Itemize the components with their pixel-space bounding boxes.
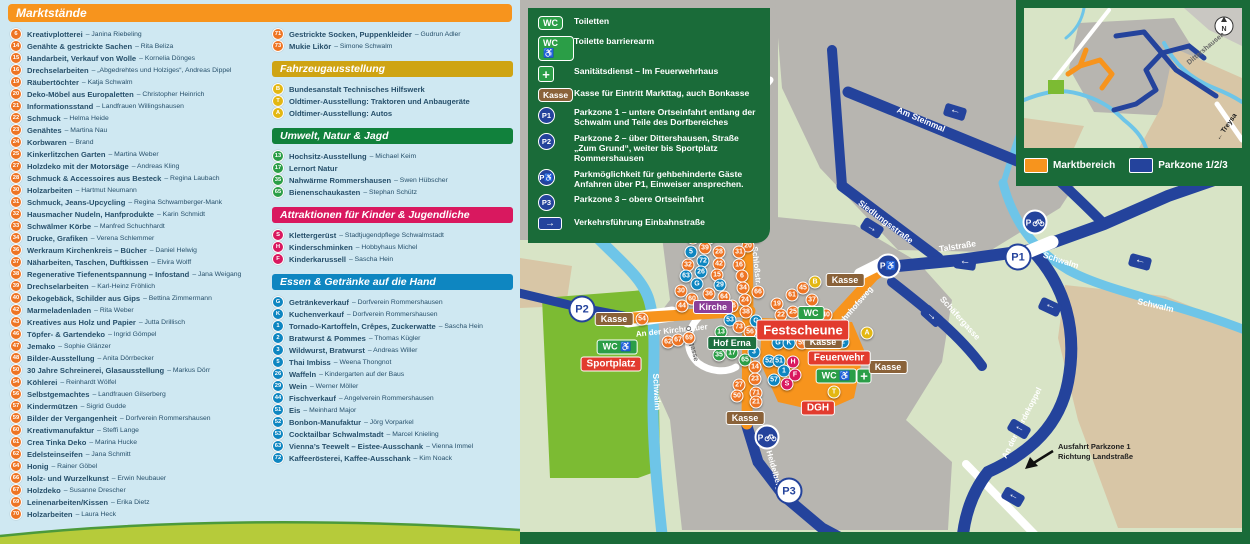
item-person: – Stephan Schütz <box>363 189 417 196</box>
legend-swatch <box>1024 158 1048 173</box>
stall-person: – Landfrauen Gilserberg <box>92 391 165 398</box>
badge-text: Kasse <box>601 314 628 324</box>
section-item-list: B Bundesanstalt Technisches Hilfswerk T … <box>272 83 513 119</box>
stall-name: Regenerative Tiefenentspannung – Infosta… <box>27 270 189 279</box>
badge-text: + <box>860 369 868 384</box>
stall-number-marker: 24 <box>10 136 22 148</box>
map-marker: T <box>828 386 841 399</box>
map-border-right <box>1242 184 1250 544</box>
stall-name: Drechselarbeiten <box>27 282 89 291</box>
legend-item: WC Toiletten <box>538 16 762 30</box>
legend-badge-icon: Kasse <box>538 88 573 102</box>
stall-person: – Rita Weber <box>94 307 134 314</box>
stall-person: – Steffi Lange <box>97 427 139 434</box>
legend-label: Parkzone 2 – über Dittershausen, Straße … <box>574 133 762 163</box>
map-badge: WC <box>798 306 825 320</box>
section-title: Umwelt, Natur & Jagd <box>280 130 389 142</box>
item-letter-marker: 53 <box>272 428 284 440</box>
item-letter-marker: S <box>272 229 284 241</box>
map-marker: G <box>691 278 704 291</box>
item-person: – Vienna Immel <box>426 443 473 450</box>
map-badge: P♿ <box>876 254 901 279</box>
stall-number-marker: 34 <box>10 232 22 244</box>
stall-name: Näharbeiten, Taschen, Duftkissen <box>27 258 148 267</box>
stall-person: – Rita Beliza <box>135 43 173 50</box>
map-marker: 23 <box>749 373 762 386</box>
map-badge: Kirche <box>693 300 733 314</box>
badge-text: P♿ <box>880 261 896 272</box>
list-item: 67 Holzdeko – Susanne Drescher <box>10 484 270 496</box>
legend-label: Kasse für Eintritt Markttag, auch Bonkas… <box>574 88 762 98</box>
stall-number-marker: 37 <box>10 256 22 268</box>
stall-name: Gestrickte Socken, Puppenkleider <box>289 30 412 39</box>
stall-person: – Sigrid Gudde <box>81 403 126 410</box>
legend-badge-icon: + <box>538 66 554 82</box>
item-letter-marker: 35 <box>272 174 284 186</box>
legend-item: P2 Parkzone 2 – über Dittershausen, Stra… <box>538 133 762 163</box>
map-badge: P <box>755 425 780 450</box>
list-item: 46 Töpfer- & Gartendeko – Ingrid Gömpel <box>10 328 270 340</box>
list-item: S Klettergerüst – Stadtjugendpflege Schw… <box>272 229 513 241</box>
stall-person: – Gudrun Adler <box>415 31 461 38</box>
list-item: 44 Fischverkauf – Angelverein Rommershau… <box>272 392 513 404</box>
item-person: – Angelverein Rommershausen <box>339 395 434 402</box>
list-item: 21 Informationsstand – Landfrauen Willin… <box>10 100 270 112</box>
stall-number-marker: 71 <box>272 28 284 40</box>
section-header-bar: Umwelt, Natur & Jagd <box>272 128 513 144</box>
stall-number-marker: 43 <box>10 316 22 328</box>
stall-list-column-2: 71 Gestrickte Socken, Puppenkleider – Gu… <box>272 28 513 464</box>
stall-person: – Elvira Wolff <box>151 259 191 266</box>
list-item: 43 Kreatives aus Holz und Papier – Jutta… <box>10 316 270 328</box>
bicycle-icon <box>1032 218 1044 226</box>
stall-name: Leinenarbeiten/Kissen <box>27 498 108 507</box>
map-marker: 31 <box>733 246 746 259</box>
map-marker: 5 <box>685 246 698 259</box>
map-marker: 37 <box>806 294 819 307</box>
stall-name: Schmuck & Accessoires aus Besteck <box>27 174 161 183</box>
list-item: 50 30 Jahre Schreinerei, Glasausstellung… <box>10 364 270 376</box>
stall-person: – Martina Nau <box>65 127 108 134</box>
stall-person: – Brand <box>70 139 94 146</box>
map-badge: P1 <box>1005 244 1032 271</box>
legend-label: Parkzone 3 – obere Ortseinfahrt <box>574 194 762 204</box>
list-item: 40 Dekogebäck, Schilder aus Gips – Betti… <box>10 292 270 304</box>
section-title: Attraktionen für Kinder & Jugendliche <box>280 209 470 221</box>
list-item: 63 Vienna’s Teewelt – Eistee-Ausschank –… <box>272 440 513 452</box>
stall-person: – Sophie Glänzer <box>58 343 111 350</box>
stall-number-marker: 30 <box>10 184 22 196</box>
list-item: 5 Thai Imbiss – Weena Thongnot <box>272 356 513 368</box>
legend-label: Parkmöglichkeit für gehbehinderte Gäste … <box>574 169 762 189</box>
list-item: 13 Hochsitz-Ausstellung – Michael Keim <box>272 150 513 162</box>
item-name: Eis <box>289 406 300 415</box>
list-item: 54 Köhlerei – Reinhardt Wölfel <box>10 376 270 388</box>
map-badge: WC ♿ <box>816 369 857 384</box>
stall-name: Jemako <box>27 342 55 351</box>
badge-text: P1 <box>1011 251 1024 263</box>
legend-label: Toiletten <box>574 16 762 26</box>
item-person: – Kim Noack <box>414 455 453 462</box>
item-name: Klettergerüst <box>289 231 336 240</box>
stall-number-marker: 47 <box>10 340 22 352</box>
stall-name: Dekogebäck, Schilder aus Gips <box>27 294 140 303</box>
legend-item: P1 Parkzone 1 – untere Ortseinfahrt entl… <box>538 107 762 127</box>
item-name: Waffeln <box>289 370 316 379</box>
item-letter-marker: T <box>272 95 284 107</box>
list-item: 52 Bonbon-Manufaktur – Jörg Vorparkel <box>272 416 513 428</box>
item-name: Bundesanstalt Technisches Hilfswerk <box>289 85 425 94</box>
item-letter-marker: 63 <box>272 440 284 452</box>
marktstaende-header-bar: Marktstände <box>8 4 512 22</box>
badge-text: WC ♿ <box>603 342 632 352</box>
badge-text: Kasse <box>732 413 759 423</box>
item-person: – Andreas Willer <box>368 347 418 354</box>
item-name: Bonbon-Manufaktur <box>289 418 361 427</box>
stall-person: – Erika Dietz <box>111 499 150 506</box>
list-item: 59 Bilder der Vergangenheit – Dorfverein… <box>10 412 270 424</box>
badge-text: Sportplatz <box>587 359 636 370</box>
list-item: 66 Holz- und Wurzelkunst – Erwin Neubaue… <box>10 472 270 484</box>
stall-number-marker: 50 <box>10 364 22 376</box>
stall-number-marker: 28 <box>10 172 22 184</box>
list-item: 1 Tornado-Kartoffeln, Crêpes, Zuckerwatt… <box>272 320 513 332</box>
item-letter-marker: F <box>272 253 284 265</box>
map-badge: Feuerwehr <box>808 351 871 366</box>
stall-number-marker: 61 <box>10 436 22 448</box>
list-item: 14 Genähte & gestrickte Sachen – Rita Be… <box>10 40 270 52</box>
stall-name: Kinkerlitzchen Garten <box>27 150 106 159</box>
item-person: – Weena Thongnot <box>334 359 392 366</box>
item-name: Nahwärme Rommershausen <box>289 176 391 185</box>
list-item: 73 Mukie Likör – Simone Schwalm <box>272 40 513 52</box>
stall-name: Holzdeko <box>27 486 61 495</box>
category-section: Essen & Getränke auf die Hand G Getränke… <box>272 274 513 464</box>
legend-badge-icon: P1 <box>538 107 555 124</box>
stall-number-marker: 69 <box>10 496 22 508</box>
stall-name: Marmeladenladen <box>27 306 91 315</box>
stall-name: Kreativplotterei <box>27 30 83 39</box>
legend-badge-icon: → <box>538 217 562 230</box>
stall-name: Kindermützen <box>27 402 78 411</box>
list-item: F Kinderkarussell – Sascha Hein <box>272 253 513 265</box>
map-marker: 34 <box>737 282 750 295</box>
bicycle-icon <box>764 433 776 441</box>
item-letter-marker: 13 <box>272 150 284 162</box>
legend-label: Verkehrsführung Einbahnstraße <box>574 217 762 227</box>
map-marker: 57 <box>768 374 781 387</box>
list-item: 33 Schwälmer Körbe – Manfred Schuchhardt <box>10 220 270 232</box>
list-item: 36 Werkraum Kirchenkreis – Bücher – Dani… <box>10 244 270 256</box>
stall-number-marker: 48 <box>10 352 22 364</box>
badge-text: Kirche <box>699 302 727 312</box>
section-header-bar: Fahrzeugausstellung <box>272 61 513 77</box>
category-section: Attraktionen für Kinder & Jugendliche S … <box>272 207 513 265</box>
stall-person: – Simone Schwalm <box>334 43 392 50</box>
stall-number-marker: 73 <box>272 40 284 52</box>
badge-text: WC ♿ <box>822 371 851 381</box>
stall-number-marker: 23 <box>10 124 22 136</box>
section-header-bar: Essen & Getränke auf die Hand <box>272 274 513 290</box>
item-letter-marker: K <box>272 308 284 320</box>
list-item: 42 Marmeladenladen – Rita Weber <box>10 304 270 316</box>
item-letter-marker: H <box>272 241 284 253</box>
label-schwalm-west: Schwalm <box>651 373 663 411</box>
list-item: 56 Selbstgemachtes – Landfrauen Gilserbe… <box>10 388 270 400</box>
stall-name: Holzdeko mit der Motorsäge <box>27 162 129 171</box>
list-item: 31 Schmuck, Jeans-Upcycling – Regina Sch… <box>10 196 270 208</box>
stall-name: Holz- und Wurzelkunst <box>27 474 109 483</box>
item-name: Thai Imbiss <box>289 358 331 367</box>
item-person: – Dorfverein Rommershausen <box>352 299 443 306</box>
item-name: Bratwurst & Pommes <box>289 334 366 343</box>
brochure-page: Marktstände 6 Kreativplotterei – Janina … <box>0 0 1250 544</box>
list-item: 32 Hausmacher Nudeln, Hanfprodukte – Kar… <box>10 208 270 220</box>
item-name: Kinderkarussell <box>289 255 346 264</box>
list-item: 57 Kindermützen – Sigrid Gudde <box>10 400 270 412</box>
legend-item: P3 Parkzone 3 – obere Ortseinfahrt <box>538 194 762 211</box>
item-name: Fischverkauf <box>289 394 336 403</box>
map-marker: 39 <box>699 242 712 255</box>
item-letter-marker: 65 <box>272 186 284 198</box>
item-letter-marker: 29 <box>272 380 284 392</box>
map-badge: Sportplatz <box>581 357 642 372</box>
list-item: 22 Schmuck – Helma Heide <box>10 112 270 124</box>
item-letter-marker: 26 <box>272 368 284 380</box>
item-name: Lernort Natur <box>289 164 338 173</box>
legend-item: + Sanitätsdienst – Im Feuerwehrhaus <box>538 66 762 82</box>
item-person: – Sascha Hein <box>349 256 393 263</box>
legend-item: Kasse Kasse für Eintritt Markttag, auch … <box>538 88 762 102</box>
map-marker: A <box>861 327 874 340</box>
list-item: 48 Bilder-Ausstellung – Anita Dörrbecker <box>10 352 270 364</box>
map-badge: Kasse <box>826 273 865 287</box>
stall-number-marker: 22 <box>10 112 22 124</box>
list-item: 16 Drechselarbeiten – „Abgedrehtes und H… <box>10 64 270 76</box>
stall-person: – Ingrid Gömpel <box>108 331 156 338</box>
overview-inset: N Dittershausen ← Treysa Marktbereich Pa… <box>1016 0 1250 186</box>
stall-name: Honig <box>27 462 49 471</box>
stall-person: – Katja Schwalm <box>82 79 133 86</box>
stall-list-extra: 71 Gestrickte Socken, Puppenkleider – Gu… <box>272 28 513 52</box>
map-marker: 54 <box>636 313 649 326</box>
stall-name: Bilder-Ausstellung <box>27 354 95 363</box>
item-person: – Thomas Kügler <box>369 335 421 342</box>
stall-person: – Kornelia Dönges <box>139 55 195 62</box>
legend-swatch <box>1129 158 1153 173</box>
stall-person: – Helma Heide <box>64 115 109 122</box>
stall-number-marker: 20 <box>10 88 22 100</box>
list-item: 17 Lernort Natur <box>272 162 513 174</box>
stall-name: Crea Tinka Deko <box>27 438 86 447</box>
badge-text: Feuerwehr <box>814 353 865 364</box>
list-item: 69 Leinenarbeiten/Kissen – Erika Dietz <box>10 496 270 508</box>
stall-person: – Daniel Helwig <box>150 247 197 254</box>
item-name: Bienenschaukasten <box>289 188 360 197</box>
stall-name: Räubertöchter <box>27 78 79 87</box>
map-badge: P3 <box>776 478 803 505</box>
list-item: 47 Jemako – Sophie Glänzer <box>10 340 270 352</box>
item-person: – Stadtjugendpflege Schwalmstadt <box>339 232 444 239</box>
stall-number-marker: 67 <box>10 484 22 496</box>
page-title: Marktstände <box>16 6 87 20</box>
legend-badge-icon: WC ♿ <box>538 36 574 61</box>
map-marker: B <box>809 276 822 289</box>
item-name: Hochsitz-Ausstellung <box>289 152 367 161</box>
stall-name: Handarbeit, Verkauf von Wolle <box>27 54 136 63</box>
category-sections: Fahrzeugausstellung B Bundesanstalt Tech… <box>272 61 513 464</box>
badge-text: Festscheune <box>763 323 842 338</box>
stall-person: – Susanne Drescher <box>64 487 126 494</box>
list-item: 2 Bratwurst & Pommes – Thomas Kügler <box>272 332 513 344</box>
stall-name: Selbstgemachtes <box>27 390 89 399</box>
item-letter-marker: 5 <box>272 356 284 368</box>
stall-person: – Regina Schwamberger-Mank <box>128 199 222 206</box>
item-letter-marker: 2 <box>272 332 284 344</box>
stall-name: Korbwaren <box>27 138 67 147</box>
list-item: 6 Kreativplotterei – Janina Riebeling <box>10 28 270 40</box>
section-item-list: 13 Hochsitz-Ausstellung – Michael Keim 1… <box>272 150 513 198</box>
list-item: 25 Kinkerlitzchen Garten – Martina Weber <box>10 148 270 160</box>
stall-person: – Markus Dörr <box>167 367 210 374</box>
map-marker: 35 <box>713 349 726 362</box>
stall-person: – Janina Riebeling <box>86 31 142 38</box>
stall-name: Werkraum Kirchenkreis – Bücher <box>27 246 147 255</box>
list-item: 51 Eis – Meinhard Major <box>272 404 513 416</box>
stall-person: – Manfred Schuchhardt <box>94 223 165 230</box>
item-person: – Werner Möller <box>310 383 358 390</box>
item-name: Kuchenverkauf <box>289 310 344 319</box>
list-item: 20 Deko-Möbel aus Europaletten – Christo… <box>10 88 270 100</box>
item-person: – Sascha Hein <box>439 323 483 330</box>
category-section: Fahrzeugausstellung B Bundesanstalt Tech… <box>272 61 513 119</box>
list-item: 61 Crea Tinka Deko – Marina Hucke <box>10 436 270 448</box>
map-marker: 36 <box>703 288 716 301</box>
list-item: 30 Holzarbeiten – Hartmut Neumann <box>10 184 270 196</box>
stall-number-marker: 56 <box>10 388 22 400</box>
stall-number-marker: 42 <box>10 304 22 316</box>
section-header-bar: Attraktionen für Kinder & Jugendliche <box>272 207 513 223</box>
list-item: 53 Cocktailbar Schwalmstadt – Marcel Kni… <box>272 428 513 440</box>
list-item: 38 Regenerative Tiefenentspannung – Info… <box>10 268 270 280</box>
item-letter-marker: 52 <box>272 416 284 428</box>
legend-label: Sanitätsdienst – Im Feuerwehrhaus <box>574 66 762 76</box>
legend-label: Parkzone 1 – untere Ortseinfahrt entlang… <box>574 107 762 127</box>
item-name: Oldtimer-Ausstellung: Traktoren und Anba… <box>289 97 470 106</box>
stall-list-column-1: 6 Kreativplotterei – Janina Riebeling 14… <box>10 28 270 520</box>
stall-number-marker: 33 <box>10 220 22 232</box>
item-letter-marker: 3 <box>272 344 284 356</box>
category-section: Umwelt, Natur & Jagd 13 Hochsitz-Ausstel… <box>272 128 513 198</box>
stall-number-marker: 27 <box>10 160 22 172</box>
list-item: 37 Näharbeiten, Taschen, Duftkissen – El… <box>10 256 270 268</box>
map-marker: 45 <box>797 282 810 295</box>
map-marker: 69 <box>683 332 696 345</box>
item-person: – Swen Hübscher <box>394 177 448 184</box>
stall-number-marker: 39 <box>10 280 22 292</box>
item-letter-marker: A <box>272 107 284 119</box>
item-name: Vienna’s Teewelt – Eistee-Ausschank <box>289 442 423 451</box>
item-name: Wildwurst, Bratwurst <box>289 346 365 355</box>
stall-person: – Reinhardt Wölfel <box>60 379 116 386</box>
inset-legend-item: Marktbereich <box>1024 158 1115 173</box>
list-item: 39 Drechselarbeiten – Karl-Heinz Fröhlic… <box>10 280 270 292</box>
stall-number-marker: 6 <box>10 28 22 40</box>
item-name: Kinderschminken <box>289 243 353 252</box>
badge-text: DGH <box>807 403 829 414</box>
list-item: H Kinderschminken – Hobbyhaus Michel <box>272 241 513 253</box>
item-name: Tornado-Kartoffeln, Crêpes, Zuckerwatte <box>289 322 436 331</box>
stall-number-marker: 54 <box>10 376 22 388</box>
stall-number-marker: 38 <box>10 268 22 280</box>
list-item: 19 Räubertöchter – Katja Schwalm <box>10 76 270 88</box>
stall-name: Schmuck <box>27 114 61 123</box>
list-item: 62 Edelsteinseifen – Jana Schmitt <box>10 448 270 460</box>
stall-number-marker: 66 <box>10 472 22 484</box>
stall-person: – Regina Laubach <box>164 175 219 182</box>
stall-name: Genähtes <box>27 126 62 135</box>
list-item: B Bundesanstalt Technisches Hilfswerk <box>272 83 513 95</box>
badge-text: P3 <box>782 485 795 497</box>
legend-swatch-label: Marktbereich <box>1053 160 1115 171</box>
stall-number-marker: 19 <box>10 76 22 88</box>
item-letter-marker: B <box>272 83 284 95</box>
stall-name: 30 Jahre Schreinerei, Glasausstellung <box>27 366 164 375</box>
stall-name: Kreativmanufaktur <box>27 426 94 435</box>
ausfahrt-arrow-head <box>1025 457 1038 469</box>
item-letter-marker: 44 <box>272 392 284 404</box>
map-marker: S <box>781 378 794 391</box>
stall-name: Bilder der Vergangenheit <box>27 414 117 423</box>
stall-person: – Dorfverein Rommershausen <box>120 415 211 422</box>
stall-person: – Landfrauen Willingshausen <box>96 103 184 110</box>
section-title: Essen & Getränke auf die Hand <box>280 276 436 288</box>
legend-item: P♿ Parkmöglichkeit für gehbehinderte Gäs… <box>538 169 762 189</box>
village-map: Schloßstr. An der Kirchmauer Obergasse B… <box>520 0 1250 544</box>
map-marker: 66 <box>752 286 765 299</box>
stall-person: – Bettina Zimmermann <box>143 295 212 302</box>
section-title: Fahrzeugausstellung <box>280 63 385 75</box>
map-badge: Kasse <box>869 360 908 374</box>
map-badge: Kasse <box>595 312 634 326</box>
list-item: 64 Honig – Rainer Göbel <box>10 460 270 472</box>
map-badge: Kasse <box>726 411 765 425</box>
stall-number-marker: 59 <box>10 412 22 424</box>
list-item: 71 Gestrickte Socken, Puppenkleider – Gu… <box>272 28 513 40</box>
stall-number-marker: 46 <box>10 328 22 340</box>
item-name: Cocktailbar Schwalmstadt <box>289 430 384 439</box>
list-item: 34 Drucke, Grafiken – Verena Schlemmer <box>10 232 270 244</box>
stall-list-panel: Marktstände 6 Kreativplotterei – Janina … <box>0 0 520 544</box>
inset-sportplatz <box>1048 80 1064 94</box>
badge-text: P <box>758 432 764 442</box>
legend-swatch-label: Parkzone 1/2/3 <box>1158 160 1227 171</box>
list-item: G Getränkeverkauf – Dorfverein Rommersha… <box>272 296 513 308</box>
list-item: 3 Wildwurst, Bratwurst – Andreas Willer <box>272 344 513 356</box>
stall-name: Kreatives aus Holz und Papier <box>27 318 136 327</box>
stall-name: Genähte & gestrickte Sachen <box>27 42 132 51</box>
map-marker: 21 <box>750 396 763 409</box>
stall-name: Holzarbeiten <box>27 186 73 195</box>
stall-person: – Rainer Göbel <box>52 463 98 470</box>
note-ausfahrt-line2: Richtung Landstraße <box>1058 452 1133 461</box>
item-person: – Marcel Knieling <box>387 431 439 438</box>
map-badge: Hof Erna <box>707 336 757 350</box>
item-letter-marker: 51 <box>272 404 284 416</box>
list-item: 26 Waffeln – Kindergarten auf der Baus <box>272 368 513 380</box>
stall-name: Schmuck, Jeans-Upcycling <box>27 198 125 207</box>
stall-person: – Erwin Neubauer <box>112 475 166 482</box>
